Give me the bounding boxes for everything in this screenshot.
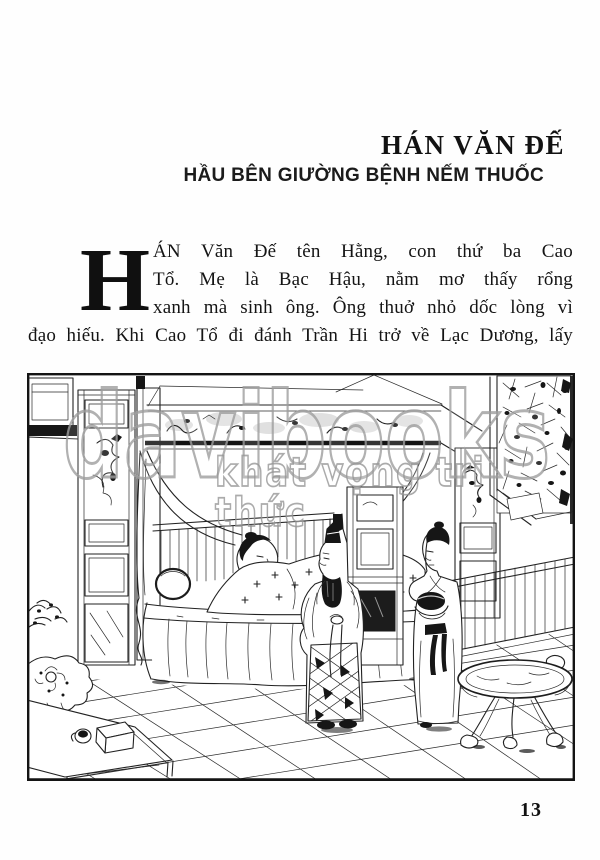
chapter-title: HÁN VĂN ĐẾ	[0, 131, 565, 161]
body-paragraph: H ÁN Văn Đế tên Hằng, con thứ ba CaoTổ. …	[28, 238, 573, 350]
paneled-pillar	[78, 390, 135, 665]
chapter-header: HÁN VĂN ĐẾ HẦU BÊN GIƯỜNG BỆNH NẾM THUỐC	[0, 131, 565, 187]
illustration-drawing	[27, 373, 575, 781]
bed-post-right	[455, 448, 500, 618]
chapter-subtitle: HẦU BÊN GIƯỜNG BỆNH NẾM THUỐC	[0, 166, 544, 187]
book-page: HÁN VĂN ĐẾ HẦU BÊN GIƯỜNG BỆNH NẾM THUỐC…	[0, 0, 600, 860]
paragraph-line: đạo hiếu. Khi Cao Tổ đi đánh Trần Hi trở…	[28, 322, 573, 350]
box	[96, 722, 134, 753]
drop-cap: H	[80, 240, 150, 322]
lattice-window	[490, 376, 575, 525]
page-number: 13	[520, 800, 542, 820]
illustration: davibooks khát vọng tri thức	[27, 373, 575, 781]
